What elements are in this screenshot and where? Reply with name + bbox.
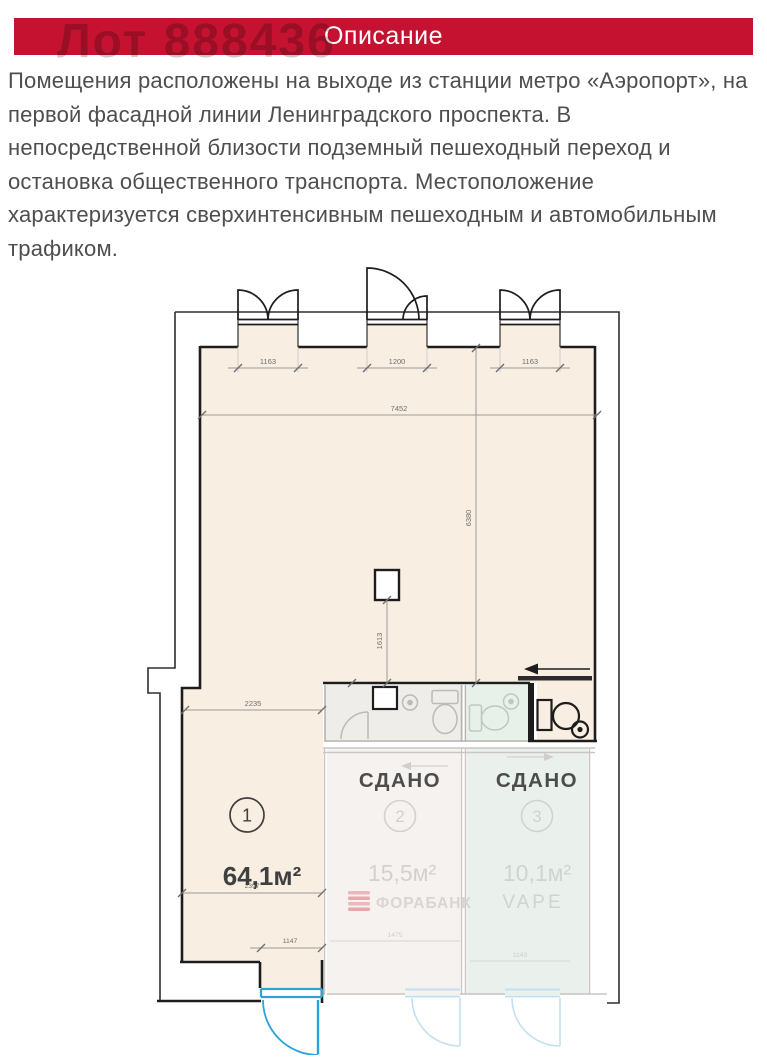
- unit2-number: 2: [395, 807, 404, 826]
- entry-partition: [518, 676, 592, 681]
- dim-bay3: 1163: [522, 357, 538, 366]
- column: [375, 570, 399, 600]
- unit3-area: 10,1м²: [503, 860, 572, 886]
- unit2-status: СДАНО: [359, 769, 441, 792]
- entry-door-unit1: [261, 989, 322, 1055]
- unit3-tenant: VAPE: [502, 892, 563, 913]
- door-leaf-icon: [500, 290, 530, 320]
- unit1-area: 64,1м²: [223, 861, 302, 891]
- dim-left-width: 2235: [245, 699, 262, 708]
- unit3-number: 3: [532, 807, 541, 826]
- dim-entry-door: 1147: [283, 938, 298, 945]
- description-paragraph: Помещения расположены на выходе из станц…: [8, 64, 756, 265]
- unit2-tenant: ФОРАБАНК: [376, 895, 472, 912]
- dim-bay1: 1163: [260, 357, 276, 366]
- unit1-number: 1: [242, 806, 252, 826]
- entry-door-unit3: [505, 990, 560, 1047]
- floorplan-image: 1163 1200 1163 7452 6380 1613 2235 2397 …: [100, 255, 660, 1055]
- unit3-status: СДАНО: [496, 769, 578, 792]
- dim-column-offset: 1613: [375, 633, 384, 650]
- wc-teal-floor: [467, 685, 530, 742]
- dim-unit3-width: 1143: [513, 952, 528, 959]
- door-leaf-icon: [530, 290, 560, 320]
- wc-column: [373, 687, 397, 709]
- dim-depth: 6380: [464, 510, 473, 527]
- unit2-area: 15,5м²: [368, 860, 437, 886]
- door-leaf-icon: [238, 290, 268, 320]
- door-leaf-icon: [403, 296, 427, 320]
- dim-total-width: 7452: [391, 404, 408, 413]
- entry-door-unit2: [405, 990, 460, 1047]
- storefront-doors: [238, 268, 560, 325]
- dim-bay2: 1200: [389, 357, 406, 366]
- lot-number-heading: Лот 888436: [57, 14, 336, 69]
- dim-unit2-width: 1475: [387, 932, 402, 939]
- door-leaf-icon: [268, 290, 298, 320]
